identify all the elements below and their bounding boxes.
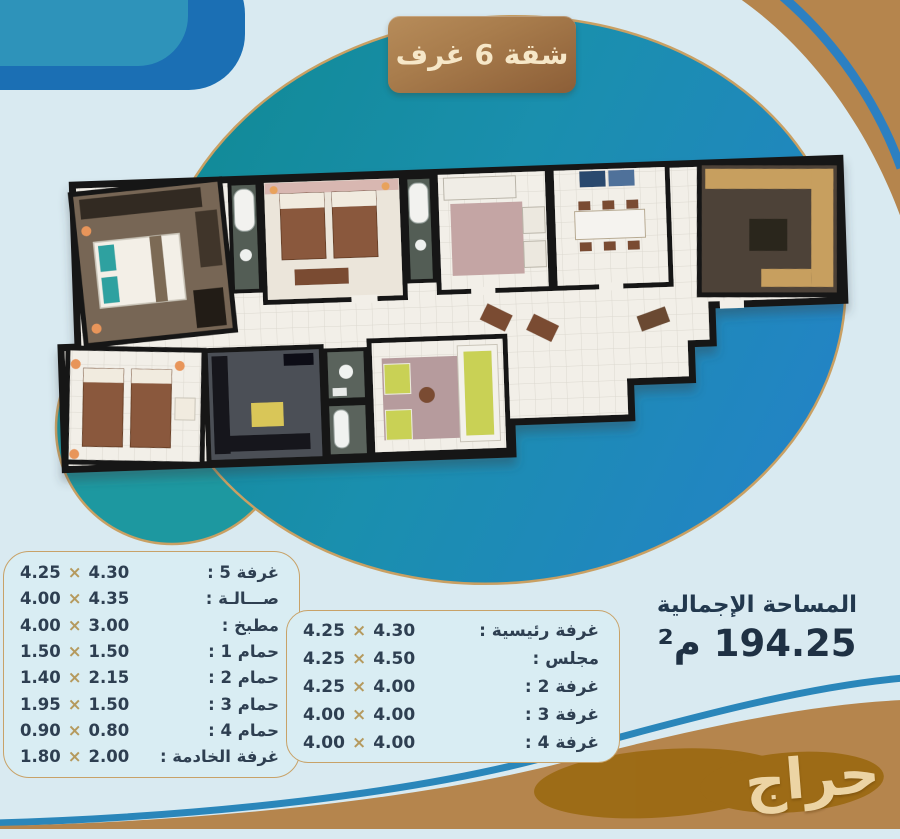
wall-art: [579, 171, 606, 188]
times-symbol: ×: [68, 618, 82, 635]
rug: [450, 201, 524, 275]
dim-b: 4.00: [373, 679, 415, 696]
total-area-value: 194.25 م²: [628, 622, 886, 665]
times-symbol: ×: [68, 749, 82, 766]
dimension-row: حمام 3 : 1.95×1.50: [20, 697, 279, 714]
room-dimensions: 4.25×4.00: [303, 679, 415, 696]
room-dining: [551, 164, 671, 288]
dim-a: 0.90: [20, 723, 61, 740]
title-badge: شقة 6 غرف: [388, 16, 576, 93]
dim-b: 2.00: [89, 749, 130, 766]
dim-b: 4.50: [373, 651, 415, 668]
dim-a: 4.00: [20, 591, 61, 608]
sofa: [443, 176, 516, 200]
dimension-row: غرفة 4 : 4.00×4.00: [303, 735, 599, 752]
times-symbol: ×: [68, 644, 82, 661]
room-bathroom-4: [327, 403, 369, 456]
room-label: حمام 4 :: [208, 723, 279, 740]
room-bedroom-2: [261, 176, 405, 303]
dim-b: 4.35: [89, 591, 130, 608]
total-area-label: المساحة الإجمالية: [628, 592, 886, 618]
dim-b: 4.00: [373, 735, 415, 752]
dim-b: 0.80: [89, 723, 130, 740]
dim-b: 3.00: [89, 618, 130, 635]
dim-a: 4.00: [20, 618, 61, 635]
room-dimensions: 1.50×1.50: [20, 644, 129, 661]
dimension-row: حمام 4 : 0.90×0.80: [20, 723, 279, 740]
title-badge-label: شقة 6 غرف: [396, 38, 569, 71]
tv-bench: [193, 287, 227, 328]
room-dimensions: 4.25×4.30: [20, 565, 129, 582]
room-bedroom-green: [369, 336, 509, 455]
times-symbol: ×: [352, 651, 366, 668]
room-dimensions: 4.00×4.00: [303, 735, 415, 752]
dim-a: 1.50: [20, 644, 61, 661]
room-label: مجلس :: [533, 651, 599, 668]
dim-a: 1.40: [20, 670, 61, 687]
room-label: غرفة 5 :: [207, 565, 279, 582]
room-dimensions: 4.25×4.30: [303, 623, 415, 640]
room-dimensions: 4.25×4.50: [303, 651, 415, 668]
times-symbol: ×: [352, 623, 366, 640]
times-symbol: ×: [68, 591, 82, 608]
times-symbol: ×: [68, 723, 82, 740]
room-dimensions: 4.00×3.00: [20, 618, 129, 635]
room-bathroom-2: [405, 177, 435, 282]
room-label: غرفة الخادمة :: [160, 749, 279, 766]
dim-a: 4.25: [303, 679, 345, 696]
room-dimensions: 1.80×2.00: [20, 749, 129, 766]
room-label: حمام 2 :: [208, 670, 279, 687]
kitchen-island: [251, 402, 284, 427]
dimension-row: مطبخ : 4.00×3.00: [20, 618, 279, 635]
dim-a: 1.95: [20, 697, 61, 714]
dimensions-panel-left: غرفة 5 : 4.25×4.30 صـــالـة : 4.00×4.35 …: [3, 551, 300, 778]
room-label: غرفة رئيسية :: [479, 623, 599, 640]
dim-a: 4.00: [303, 707, 345, 724]
dimension-row: غرفة 3 : 4.00×4.00: [303, 707, 599, 724]
total-area-block: المساحة الإجمالية 194.25 م²: [628, 592, 886, 665]
dim-b: 1.50: [89, 644, 130, 661]
room-bathroom-1: [229, 183, 261, 292]
room-label: غرفة 3 :: [525, 707, 599, 724]
room-label: حمام 3 :: [208, 697, 279, 714]
dimensions-panel-main: غرفة رئيسية : 4.25×4.30 مجلس : 4.25×4.50…: [286, 610, 620, 763]
top-left-blob: [0, 0, 245, 90]
bathtub: [234, 189, 255, 232]
dimension-row: غرفة الخادمة : 1.80×2.00: [20, 749, 279, 766]
room-kitchen: [205, 347, 325, 463]
dim-a: 4.25: [20, 565, 61, 582]
times-symbol: ×: [68, 565, 82, 582]
room-bedroom-5: [70, 179, 235, 346]
dim-a: 4.25: [303, 651, 345, 668]
dimension-row: حمام 1 : 1.50×1.50: [20, 644, 279, 661]
dimension-row: صـــالـة : 4.00×4.35: [20, 591, 279, 608]
room-dimensions: 1.40×2.15: [20, 670, 129, 687]
dim-b: 1.50: [89, 697, 130, 714]
majlis-table: [749, 219, 787, 251]
room-label: صـــالـة :: [206, 591, 279, 608]
room-dimensions: 0.90×0.80: [20, 723, 129, 740]
dim-a: 1.80: [20, 749, 61, 766]
room-dimensions: 4.00×4.00: [303, 707, 415, 724]
dimension-row: مجلس : 4.25×4.50: [303, 651, 599, 668]
room-label: غرفة 4 :: [525, 735, 599, 752]
dim-b: 2.15: [89, 670, 130, 687]
times-symbol: ×: [352, 735, 366, 752]
dimension-row: غرفة 5 : 4.25×4.30: [20, 565, 279, 582]
times-symbol: ×: [68, 670, 82, 687]
room-label: حمام 1 :: [208, 644, 279, 661]
times-symbol: ×: [68, 697, 82, 714]
room-salah: [435, 169, 551, 293]
flyer-root: { "badge": { "label": "شقة 6 غرف" }, "sy…: [0, 0, 900, 829]
dim-a: 4.00: [303, 735, 345, 752]
dim-b: 4.00: [373, 707, 415, 724]
room-label: غرفة 2 :: [525, 679, 599, 696]
times-symbol: ×: [352, 707, 366, 724]
dimension-row: غرفة رئيسية : 4.25×4.30: [303, 623, 599, 640]
dim-a: 4.25: [303, 623, 345, 640]
dining-table: [575, 209, 646, 239]
bathtub: [408, 183, 428, 224]
wall-art: [608, 170, 635, 187]
room-bedroom-bottom: [66, 348, 204, 464]
dimension-row: حمام 2 : 1.40×2.15: [20, 670, 279, 687]
dimension-row: غرفة 2 : 4.25×4.00: [303, 679, 599, 696]
room-majlis: [699, 163, 839, 295]
times-symbol: ×: [352, 679, 366, 696]
dim-b: 4.30: [373, 623, 415, 640]
room-label: مطبخ :: [222, 618, 279, 635]
dim-b: 4.30: [89, 565, 130, 582]
room-dimensions: 4.00×4.35: [20, 591, 129, 608]
room-bathroom-3: [325, 349, 367, 400]
room-dimensions: 1.95×1.50: [20, 697, 129, 714]
